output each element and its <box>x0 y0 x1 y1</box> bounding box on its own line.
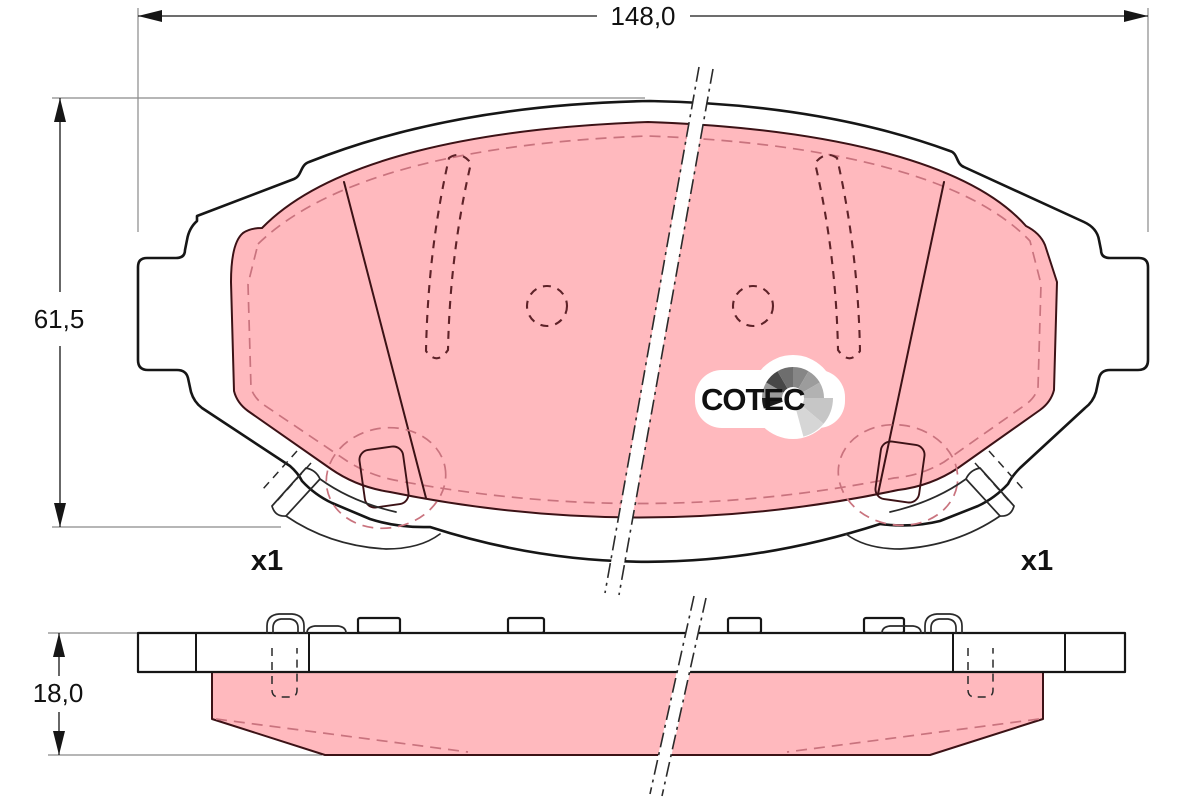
friction-material-side <box>212 672 1043 755</box>
backplate-side <box>138 633 1125 672</box>
friction-material <box>231 122 1057 538</box>
dimension-height-value: 61,5 <box>34 304 85 334</box>
lug <box>358 618 400 633</box>
quantity-label-right: x1 <box>1021 545 1053 577</box>
front-view: 148,0 61,5 <box>34 1 1148 595</box>
dimension-thickness-value: 18,0 <box>33 678 84 708</box>
side-view: 18,0 <box>33 596 1125 796</box>
logo-brand-text: COTEC <box>701 382 805 417</box>
dimension-width-value: 148,0 <box>610 1 675 31</box>
clip-hook-left <box>267 614 304 633</box>
arrowhead-left <box>138 10 162 22</box>
arrowhead-bottom <box>53 731 65 755</box>
lug <box>728 618 761 633</box>
brake-pad-technical-drawing: 148,0 61,5 <box>0 0 1200 800</box>
arrowhead-top <box>54 98 66 122</box>
lug <box>508 618 544 633</box>
clip-hook-right <box>925 614 962 633</box>
arrowhead-bottom <box>54 503 66 527</box>
quantity-label-left: x1 <box>251 545 283 577</box>
arrowhead-right <box>1124 10 1148 22</box>
backplate-lugs <box>358 618 904 633</box>
arrowhead-top <box>53 633 65 657</box>
